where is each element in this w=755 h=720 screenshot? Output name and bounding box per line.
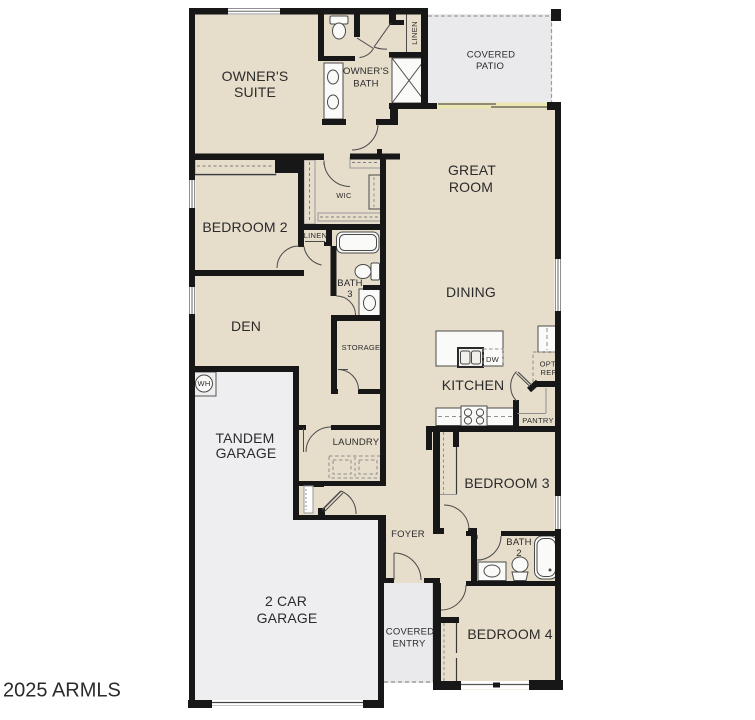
svg-text:OWNER'S: OWNER'S	[222, 68, 289, 84]
svg-text:LAUNDRY: LAUNDRY	[333, 437, 380, 448]
svg-text:BEDROOM 2: BEDROOM 2	[202, 219, 287, 235]
svg-text:2 CAR: 2 CAR	[265, 593, 307, 609]
svg-text:COVERED: COVERED	[467, 50, 515, 61]
svg-text:SUITE: SUITE	[234, 84, 276, 100]
svg-text:ENTRY: ENTRY	[392, 639, 425, 650]
svg-text:PATIO: PATIO	[476, 61, 504, 72]
svg-text:BEDROOM 4: BEDROOM 4	[467, 626, 552, 642]
svg-text:LINEN: LINEN	[410, 21, 419, 45]
svg-text:3: 3	[347, 289, 352, 300]
svg-text:DEN: DEN	[231, 318, 261, 334]
svg-text:WH: WH	[197, 379, 210, 388]
svg-text:GREAT: GREAT	[448, 162, 496, 178]
svg-text:KITCHEN: KITCHEN	[442, 377, 505, 393]
svg-text:LINEN: LINEN	[304, 231, 328, 240]
svg-text:FOYER: FOYER	[391, 529, 425, 540]
svg-text:2025 ARMLS: 2025 ARMLS	[3, 680, 121, 702]
svg-text:DINING: DINING	[446, 284, 496, 300]
svg-text:REF: REF	[541, 368, 557, 377]
svg-text:WIC: WIC	[336, 191, 352, 200]
svg-text:DW: DW	[486, 355, 500, 364]
svg-text:BATH: BATH	[353, 79, 378, 90]
svg-text:STORAGE: STORAGE	[342, 343, 381, 352]
svg-text:GARAGE: GARAGE	[257, 610, 318, 626]
svg-text:GARAGE: GARAGE	[216, 445, 277, 461]
svg-text:TANDEM: TANDEM	[216, 430, 275, 446]
svg-text:ROOM: ROOM	[449, 179, 493, 195]
svg-text:2: 2	[516, 548, 521, 559]
svg-text:BEDROOM 3: BEDROOM 3	[464, 475, 549, 491]
svg-text:PANTRY: PANTRY	[522, 416, 554, 425]
svg-text:BATH: BATH	[506, 537, 531, 548]
svg-text:OWNER'S: OWNER'S	[343, 66, 389, 77]
svg-text:COVERED: COVERED	[386, 627, 434, 638]
svg-text:BATH: BATH	[337, 278, 362, 289]
